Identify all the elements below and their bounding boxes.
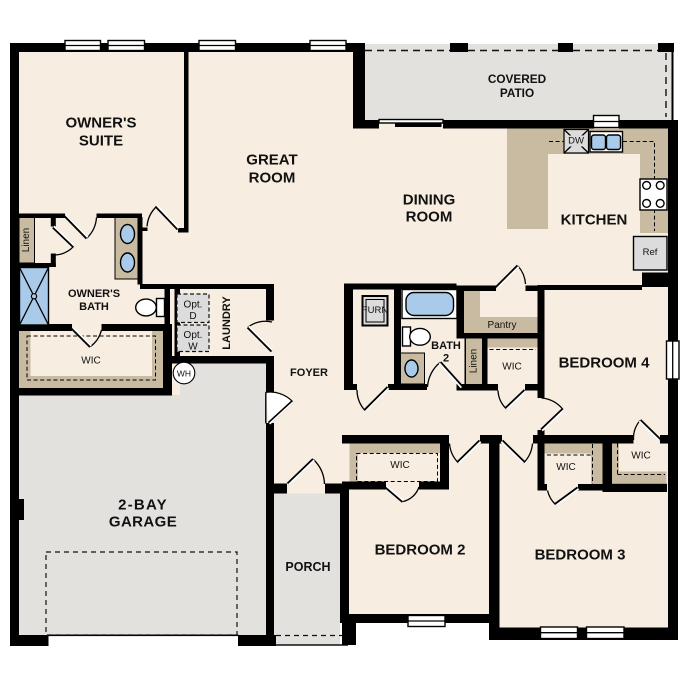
svg-text:WH: WH bbox=[177, 369, 191, 379]
svg-text:Linen: Linen bbox=[21, 228, 32, 252]
svg-text:WIC: WIC bbox=[631, 451, 650, 462]
svg-text:D: D bbox=[189, 311, 196, 322]
svg-text:Opt.: Opt. bbox=[184, 330, 203, 341]
svg-text:Linen: Linen bbox=[469, 349, 480, 373]
svg-text:WIC: WIC bbox=[390, 460, 409, 471]
svg-text:OWNER'S: OWNER'S bbox=[68, 288, 120, 300]
svg-text:LAUNDRY: LAUNDRY bbox=[221, 296, 233, 350]
svg-text:DINING: DINING bbox=[403, 192, 456, 209]
svg-text:BEDROOM 3: BEDROOM 3 bbox=[535, 547, 626, 564]
svg-text:WIC: WIC bbox=[502, 362, 521, 373]
svg-text:FURN: FURN bbox=[362, 305, 389, 316]
svg-text:GREAT: GREAT bbox=[246, 152, 297, 169]
svg-text:Pantry: Pantry bbox=[488, 320, 517, 331]
svg-text:SUITE: SUITE bbox=[79, 133, 123, 150]
svg-text:COVERED: COVERED bbox=[488, 72, 547, 86]
svg-text:Opt.: Opt. bbox=[184, 300, 203, 311]
svg-text:WIC: WIC bbox=[81, 356, 100, 367]
svg-text:WIC: WIC bbox=[556, 462, 575, 473]
svg-text:BATH: BATH bbox=[79, 301, 109, 313]
svg-text:BEDROOM 4: BEDROOM 4 bbox=[559, 355, 651, 372]
svg-text:ROOM: ROOM bbox=[406, 209, 453, 226]
svg-text:GARAGE: GARAGE bbox=[109, 514, 177, 531]
svg-text:PORCH: PORCH bbox=[285, 560, 330, 574]
svg-text:ROOM: ROOM bbox=[249, 170, 296, 187]
svg-text:Ref: Ref bbox=[643, 247, 658, 258]
svg-text:W: W bbox=[188, 342, 198, 353]
svg-text:FOYER: FOYER bbox=[290, 367, 328, 379]
svg-text:BEDROOM 2: BEDROOM 2 bbox=[375, 542, 466, 559]
svg-text:KITCHEN: KITCHEN bbox=[561, 212, 628, 229]
svg-text:2-BAY: 2-BAY bbox=[118, 497, 168, 514]
svg-text:2: 2 bbox=[443, 353, 449, 365]
svg-text:BATH: BATH bbox=[431, 340, 461, 352]
svg-text:OWNER'S: OWNER'S bbox=[65, 115, 136, 132]
svg-text:PATIO: PATIO bbox=[500, 86, 534, 100]
svg-text:DW: DW bbox=[568, 136, 584, 147]
